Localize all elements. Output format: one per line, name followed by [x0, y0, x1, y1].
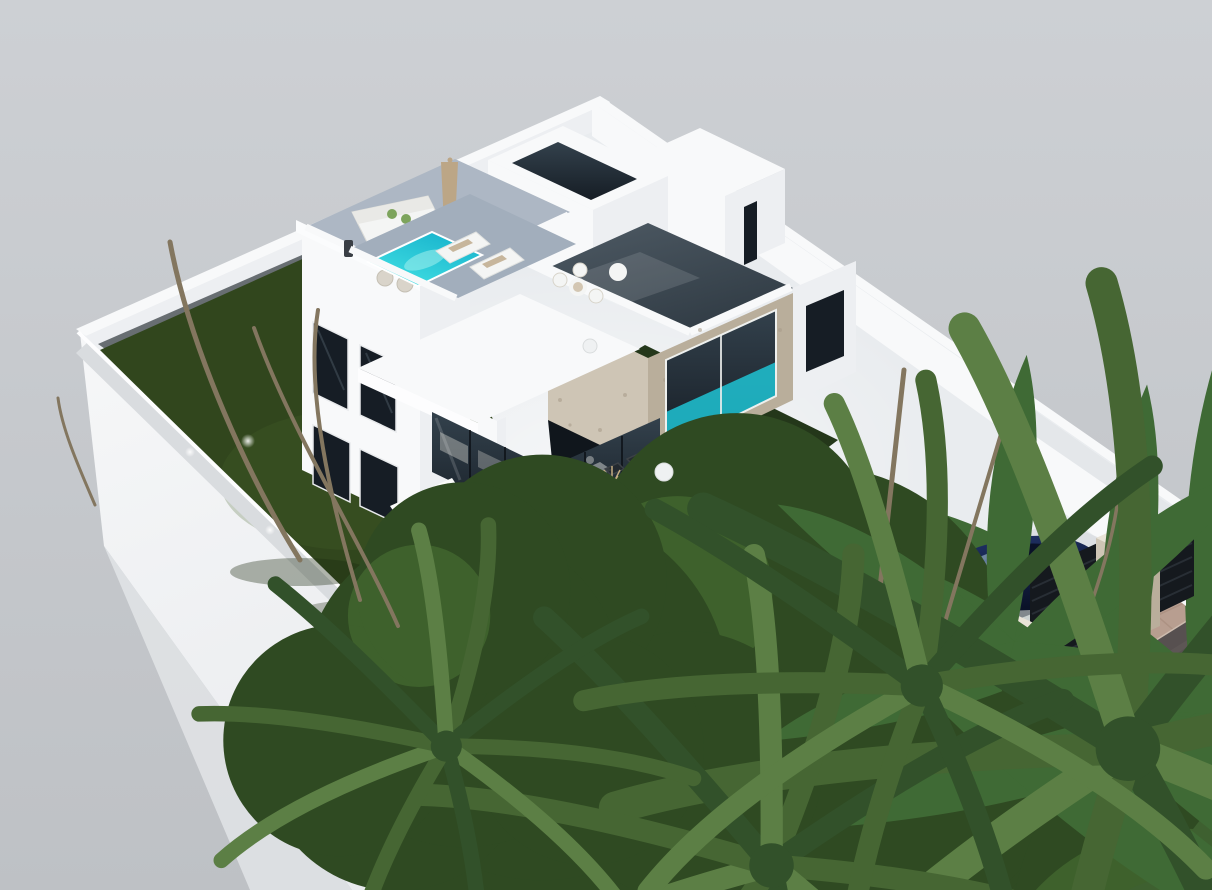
render-canvas: B: [0, 0, 1212, 890]
villa-render: B: [0, 0, 1212, 890]
door-slit: [744, 201, 757, 265]
